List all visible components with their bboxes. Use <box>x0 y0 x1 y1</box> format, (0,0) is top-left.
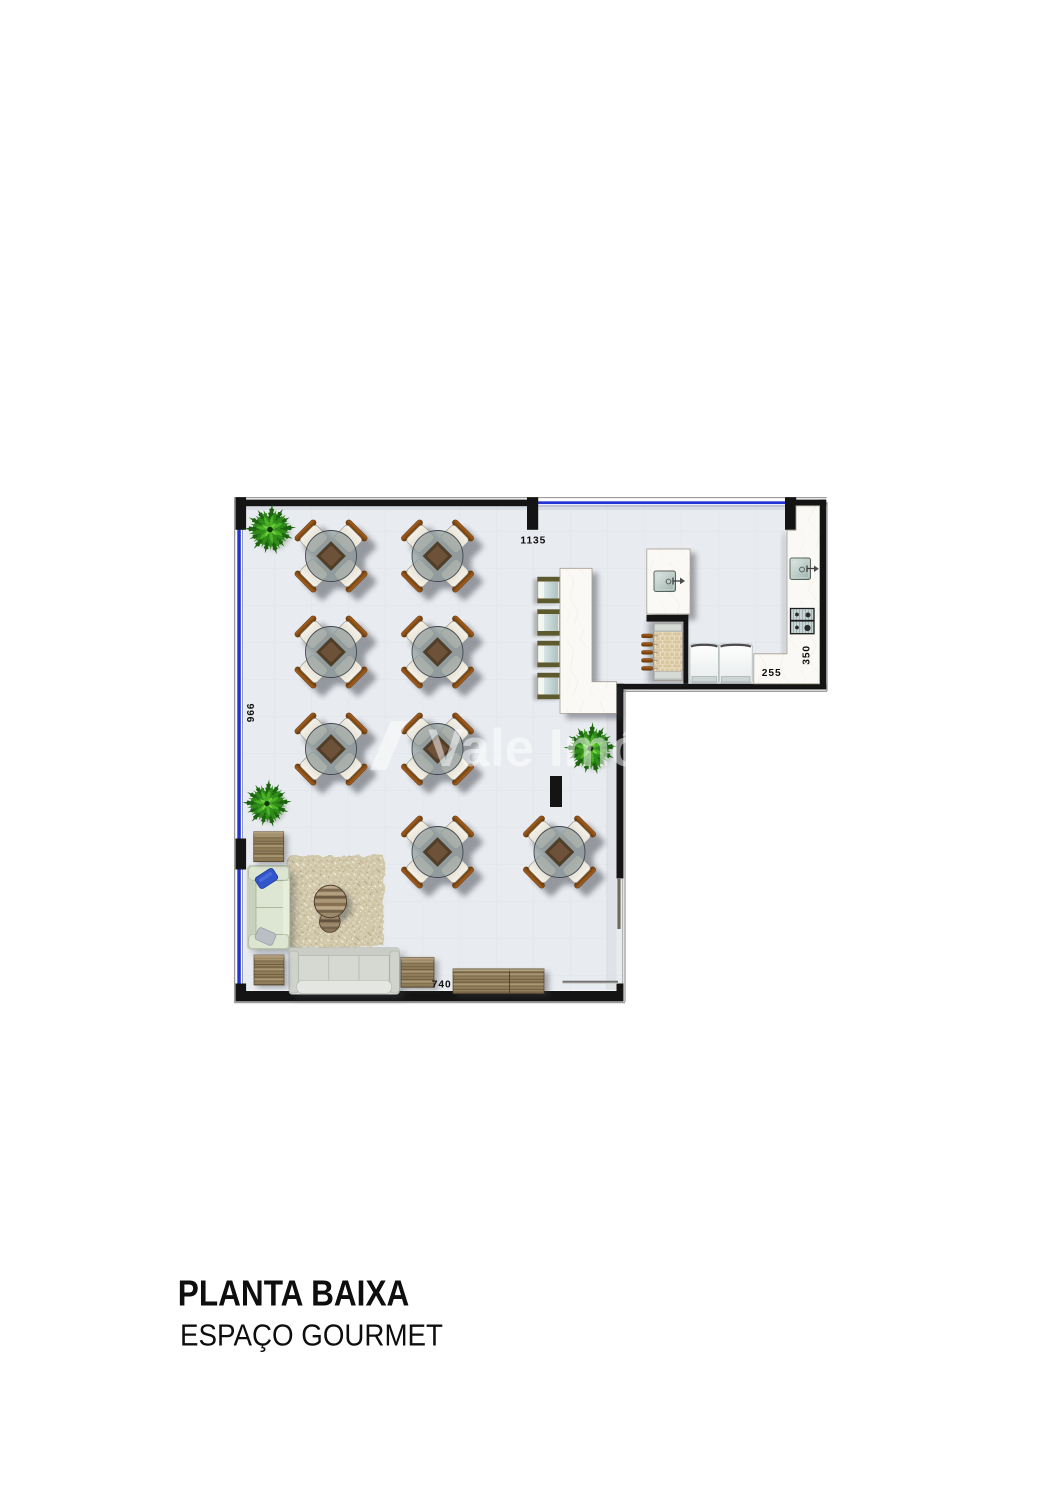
svg-text:255: 255 <box>762 668 782 679</box>
svg-text:1135: 1135 <box>520 536 546 547</box>
svg-text:ESPAÇO GOURMET: ESPAÇO GOURMET <box>180 1319 443 1353</box>
svg-text:966: 966 <box>246 702 257 722</box>
svg-text:PLANTA BAIXA: PLANTA BAIXA <box>178 1273 409 1314</box>
svg-text:350: 350 <box>802 645 813 665</box>
svg-text:740: 740 <box>432 980 452 991</box>
svg-text:Vale Imó: Vale Imó <box>428 719 643 778</box>
